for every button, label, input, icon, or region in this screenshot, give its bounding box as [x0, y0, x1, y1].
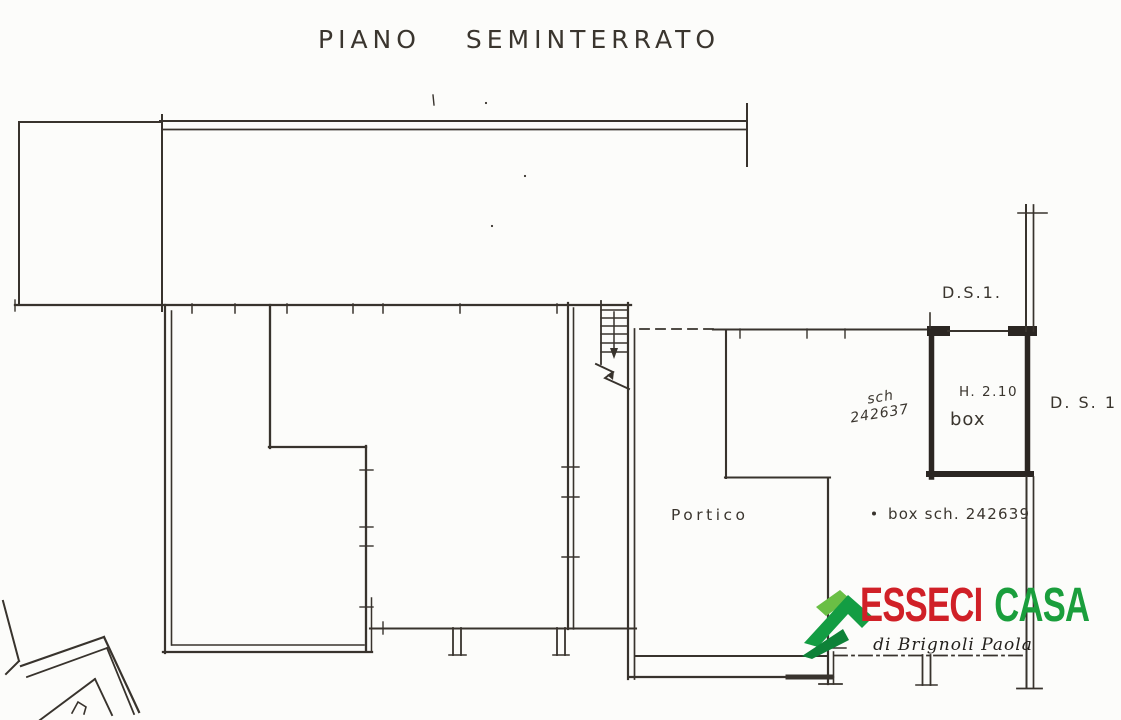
- logo-brand-primary: ESSECI: [860, 579, 982, 632]
- plan-title: PIANO SEMINTERRATO: [318, 25, 720, 54]
- adjacent-building-fragment: [3, 601, 139, 720]
- agency-logo: ESSECI CASA di Brignoli Paola: [798, 578, 1120, 668]
- logo-tagline: di Brignoli Paola: [862, 635, 1044, 655]
- staircase: [596, 301, 629, 389]
- label-ds1-right: D. S. 1 .: [1050, 393, 1121, 412]
- label-ds1-top: D.S.1.: [942, 283, 1002, 302]
- label-portico: Portico: [671, 506, 749, 524]
- main-building-walls: [163, 303, 579, 653]
- outer-boundary-walls: [19, 95, 747, 311]
- label-stair-reference: sch 242637: [847, 385, 911, 426]
- logo-brand-text: ESSECI CASA: [860, 582, 1089, 630]
- colonnade-edge: [370, 622, 636, 655]
- scan-marks: [485, 102, 876, 516]
- floorplan-page: PIANO SEMINTERRATO D.S.1. D. S. 1 . sch …: [0, 0, 1121, 720]
- label-box-room: box: [950, 409, 986, 430]
- main-top-wall: [15, 300, 631, 313]
- label-box-height: H. 2.10: [959, 384, 1018, 400]
- label-box-reference: box sch. 242639: [888, 505, 1030, 523]
- logo-brand-secondary: CASA: [994, 579, 1089, 632]
